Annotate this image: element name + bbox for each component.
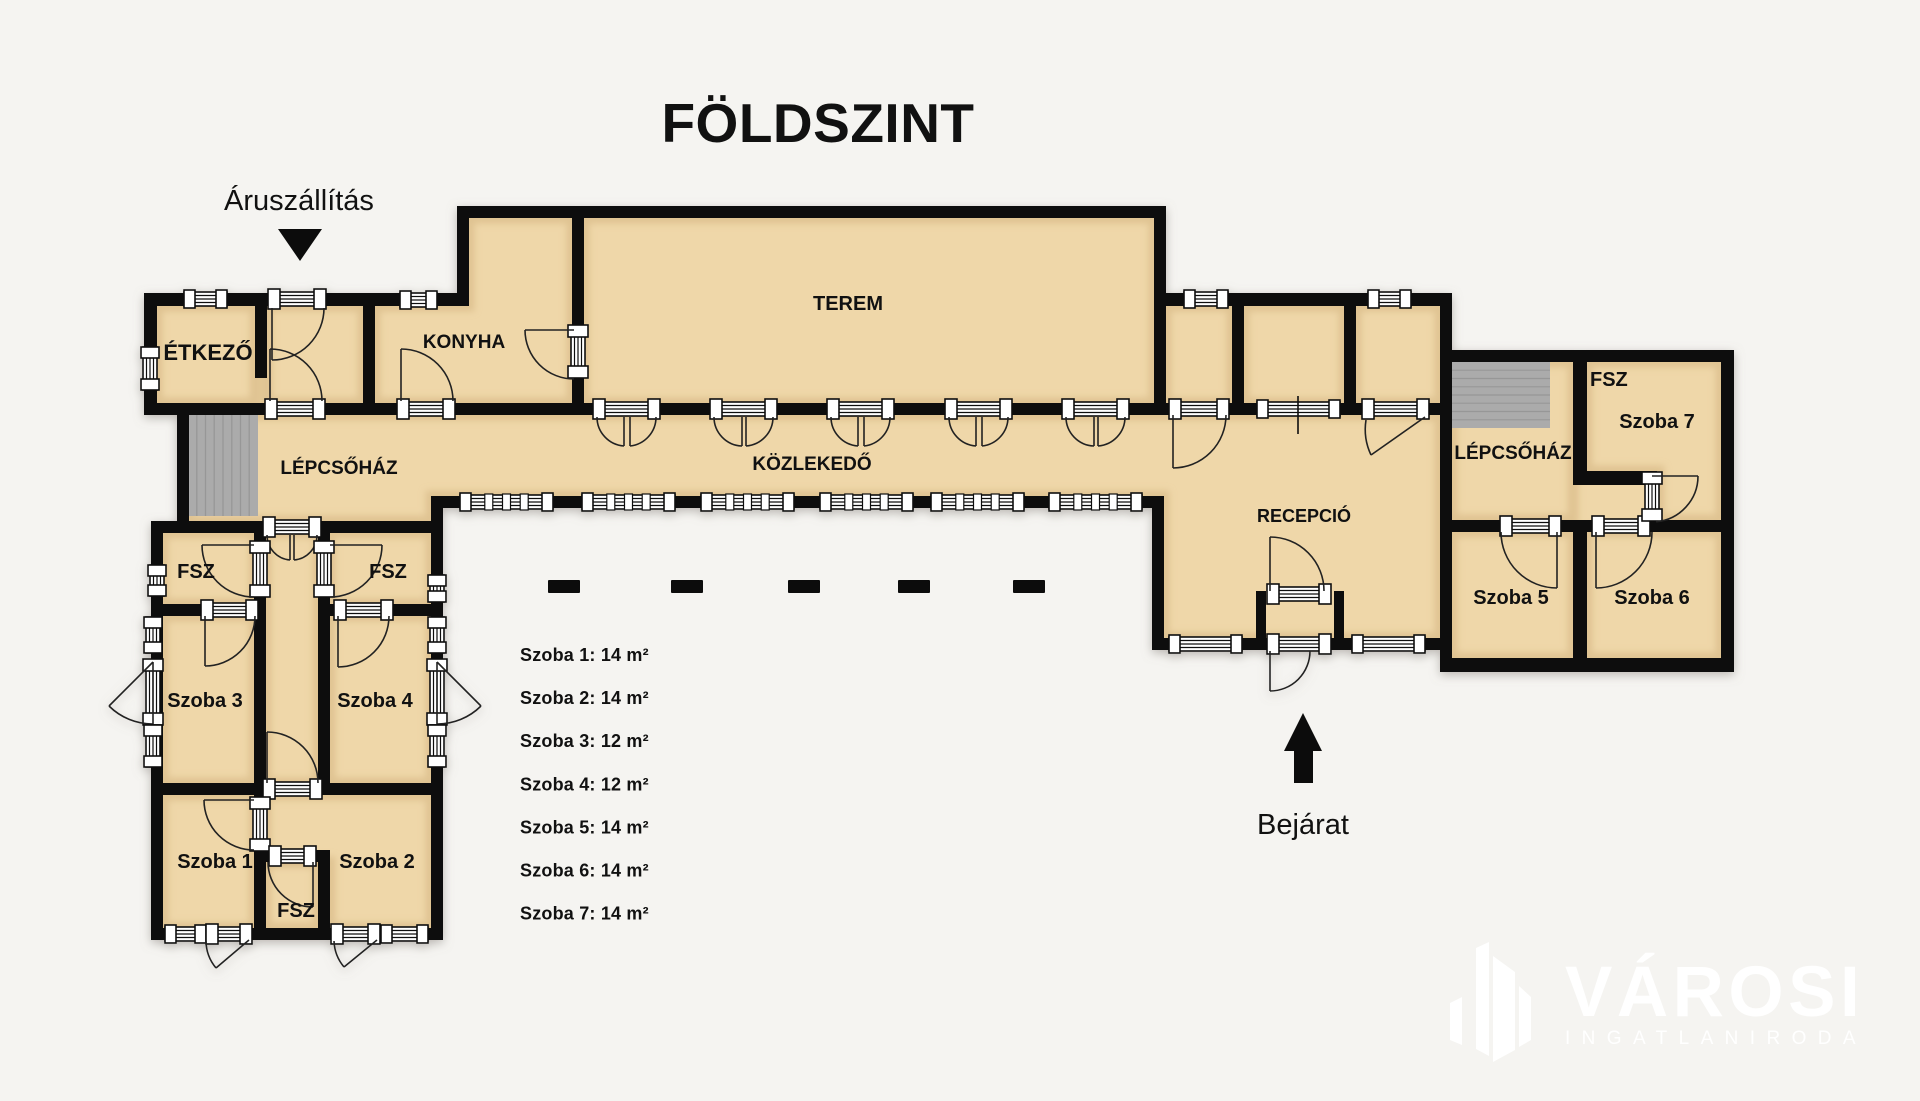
svg-text:Szoba 5: Szoba 5 (1473, 587, 1549, 609)
svg-text:Szoba 2: Szoba 2 (339, 851, 415, 873)
svg-text:TEREM: TEREM (813, 293, 883, 315)
svg-text:Bejárat: Bejárat (1257, 809, 1349, 841)
svg-text:Szoba 7: 14 m²: Szoba 7: 14 m² (520, 904, 649, 924)
svg-text:Szoba 7: Szoba 7 (1619, 411, 1695, 433)
svg-text:Szoba 6: Szoba 6 (1614, 587, 1690, 609)
svg-text:KONYHA: KONYHA (423, 332, 506, 353)
svg-text:VÁROSI: VÁROSI (1565, 953, 1864, 1032)
svg-text:Szoba 6: 14 m²: Szoba 6: 14 m² (520, 861, 649, 881)
svg-text:Szoba 3: 12 m²: Szoba 3: 12 m² (520, 731, 649, 751)
svg-text:INGATLANIRODA: INGATLANIRODA (1565, 1028, 1867, 1049)
svg-text:Áruszállítás: Áruszállítás (224, 184, 374, 217)
svg-text:Szoba 1: 14 m²: Szoba 1: 14 m² (520, 645, 649, 665)
svg-text:Szoba 5: 14 m²: Szoba 5: 14 m² (520, 817, 649, 837)
svg-text:FSZ: FSZ (177, 561, 215, 583)
svg-text:Szoba 3: Szoba 3 (167, 690, 243, 712)
svg-text:FSZ: FSZ (369, 561, 407, 583)
svg-text:LÉPCSŐHÁZ: LÉPCSŐHÁZ (1454, 442, 1572, 464)
svg-text:FSZ: FSZ (277, 900, 315, 922)
svg-text:FSZ: FSZ (1590, 369, 1628, 391)
svg-text:ÉTKEZŐ: ÉTKEZŐ (163, 340, 252, 365)
svg-text:Szoba 4: 12 m²: Szoba 4: 12 m² (520, 774, 649, 794)
svg-text:Szoba 4: Szoba 4 (337, 690, 413, 712)
svg-text:Szoba 2: 14 m²: Szoba 2: 14 m² (520, 688, 649, 708)
svg-text:FÖLDSZINT: FÖLDSZINT (661, 92, 974, 154)
svg-text:LÉPCSŐHÁZ: LÉPCSŐHÁZ (280, 457, 398, 479)
svg-text:KÖZLEKEDŐ: KÖZLEKEDŐ (752, 453, 871, 475)
svg-text:RECEPCIÓ: RECEPCIÓ (1257, 505, 1351, 526)
svg-text:Szoba 1: Szoba 1 (177, 851, 253, 873)
